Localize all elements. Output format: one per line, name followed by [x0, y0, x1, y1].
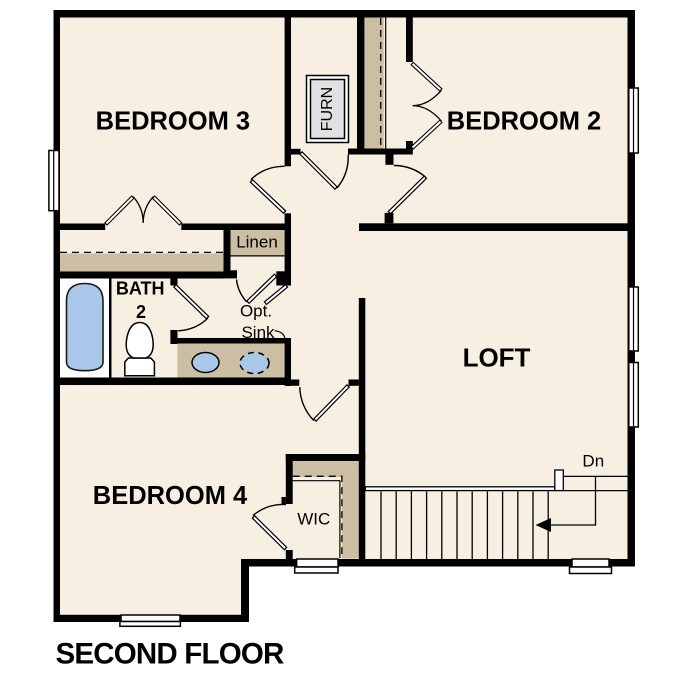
- svg-text:Sink: Sink: [241, 323, 275, 342]
- svg-text:LOFT: LOFT: [463, 343, 531, 373]
- svg-text:2: 2: [136, 302, 146, 322]
- svg-text:FURN: FURN: [319, 87, 336, 131]
- svg-text:Opt.: Opt.: [240, 302, 272, 321]
- svg-text:BEDROOM 4: BEDROOM 4: [93, 482, 248, 510]
- svg-text:BEDROOM 3: BEDROOM 3: [96, 108, 250, 136]
- svg-text:BEDROOM 2: BEDROOM 2: [447, 108, 601, 136]
- svg-text:Dn: Dn: [582, 451, 604, 470]
- svg-text:Linen: Linen: [236, 232, 278, 251]
- svg-text:SECOND FLOOR: SECOND FLOOR: [56, 638, 285, 671]
- svg-text:WIC: WIC: [297, 510, 330, 529]
- svg-text:BATH: BATH: [116, 279, 165, 299]
